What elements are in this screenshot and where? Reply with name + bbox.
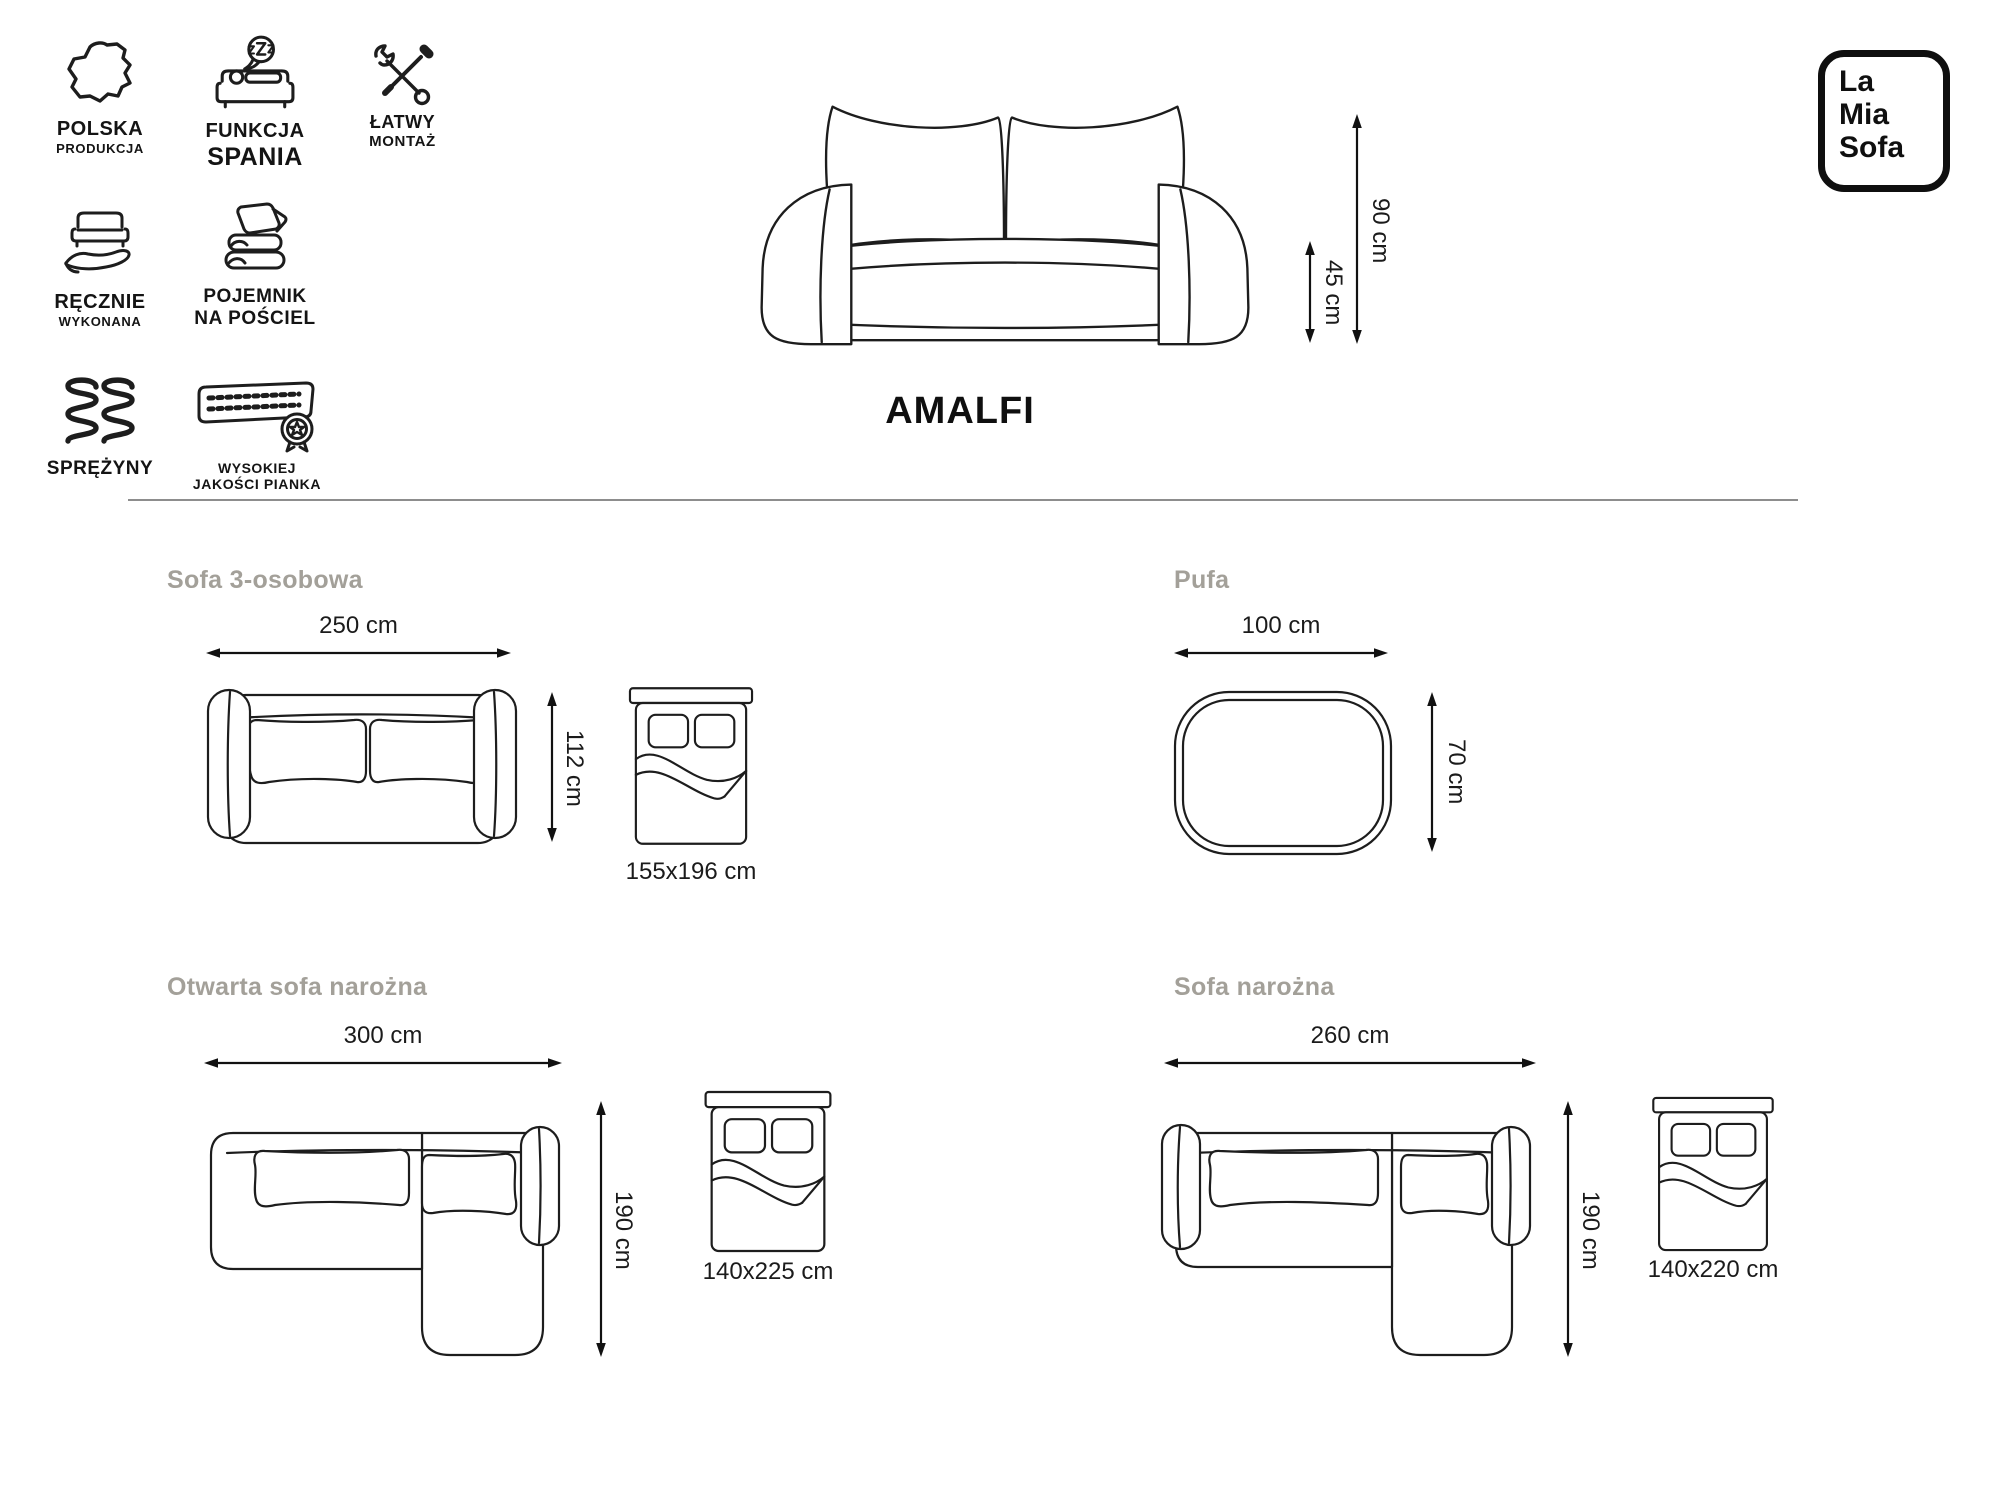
feature-sublabel: MONTAŻ xyxy=(340,133,465,150)
total-height-arrow xyxy=(1349,113,1365,345)
sofa-front-view-drawing xyxy=(730,85,1280,353)
sofa3-width-arrow xyxy=(205,645,512,661)
feature-label: SPRĘŻYNY xyxy=(30,458,170,480)
feature-label: POLSKA xyxy=(30,118,170,141)
pufa-width-label: 100 cm xyxy=(1173,612,1389,640)
feature-label: WYSOKIEJ xyxy=(168,460,346,476)
feature-sublabel: PRODUKCJA xyxy=(30,141,170,156)
corner-bed-size-label: 140x220 cm xyxy=(1588,1256,1838,1284)
feature-sublabel: WYKONANA xyxy=(30,314,170,329)
pufa-depth-arrow xyxy=(1424,691,1440,853)
springs-icon xyxy=(30,372,170,452)
quality-foam-icon xyxy=(168,378,346,454)
open-corner-top-view-drawing xyxy=(203,1095,565,1365)
section-title-open-corner: Otwarta sofa narożna xyxy=(167,973,427,1002)
corner-depth-label: 190 cm xyxy=(1574,1102,1606,1358)
feature-polska-produkcja: POLSKA PRODUKCJA xyxy=(30,38,170,156)
feature-sprezyny: SPRĘŻYNY xyxy=(30,372,170,480)
feature-label: FUNKCJA xyxy=(180,120,330,143)
brand-logo-line: La xyxy=(1839,65,1943,98)
section-title-corner: Sofa narożna xyxy=(1174,973,1335,1002)
feature-sublabel: SPANIA xyxy=(180,143,330,172)
corner-width-arrow xyxy=(1163,1055,1537,1071)
feature-label: ŁATWY xyxy=(340,112,465,133)
feature-wysokiej-jakosci-pianka: WYSOKIEJ JAKOŚCI PIANKA xyxy=(168,378,346,492)
open-corner-bed-size-label: 140x225 cm xyxy=(643,1258,893,1286)
feature-sublabel: JAKOŚCI PIANKA xyxy=(168,476,346,492)
open-corner-width-arrow xyxy=(203,1055,563,1071)
total-height-label: 90 cm xyxy=(1364,118,1396,344)
open-corner-depth-label: 190 cm xyxy=(607,1102,639,1358)
sofa3-width-label: 250 cm xyxy=(205,612,512,640)
pufa-top-view-drawing xyxy=(1173,690,1393,856)
feature-recznie-wykonana: RĘCZNIE WYKONANA xyxy=(30,205,170,329)
brand-logo-line: Mia xyxy=(1839,98,1943,131)
corner-width-label: 260 cm xyxy=(1163,1022,1537,1050)
open-corner-width-label: 300 cm xyxy=(203,1022,563,1050)
sofa3-top-view-drawing xyxy=(203,685,521,853)
corner-bed-icon xyxy=(1650,1096,1776,1252)
feature-label: RĘCZNIE xyxy=(30,291,170,314)
feature-sublabel: NA POŚCIEL xyxy=(180,308,330,330)
section-divider xyxy=(128,499,1798,501)
bedding-container-icon xyxy=(180,200,330,280)
brand-logo-line: Sofa xyxy=(1839,131,1943,164)
sofa3-bed-size-label: 155x196 cm xyxy=(591,858,791,886)
feature-funkcja-spania: FUNKCJA SPANIA xyxy=(180,34,330,172)
poland-map-icon xyxy=(30,38,170,112)
seat-height-label: 45 cm xyxy=(1317,242,1349,344)
hand-sofa-icon xyxy=(30,205,170,285)
sofa3-depth-label: 112 cm xyxy=(558,692,590,844)
feature-latwy-montaz: ŁATWY MONTAŻ xyxy=(340,42,465,150)
feature-pojemnik-na-posciel: POJEMNIK NA POŚCIEL xyxy=(180,200,330,330)
pufa-depth-label: 70 cm xyxy=(1440,692,1472,852)
sleep-function-icon xyxy=(180,34,330,114)
open-corner-bed-icon xyxy=(703,1090,833,1253)
section-title-sofa3: Sofa 3-osobowa xyxy=(167,566,363,595)
brand-logo: La Mia Sofa xyxy=(1818,50,1950,192)
seat-height-arrow xyxy=(1302,240,1318,344)
section-title-pufa: Pufa xyxy=(1174,566,1229,595)
sofa3-bed-icon xyxy=(628,686,754,846)
corner-top-view-drawing xyxy=(1160,1095,1535,1365)
tools-icon xyxy=(340,42,465,106)
product-name: AMALFI xyxy=(760,390,1160,433)
feature-label: POJEMNIK xyxy=(180,286,330,308)
pufa-width-arrow xyxy=(1173,645,1389,661)
